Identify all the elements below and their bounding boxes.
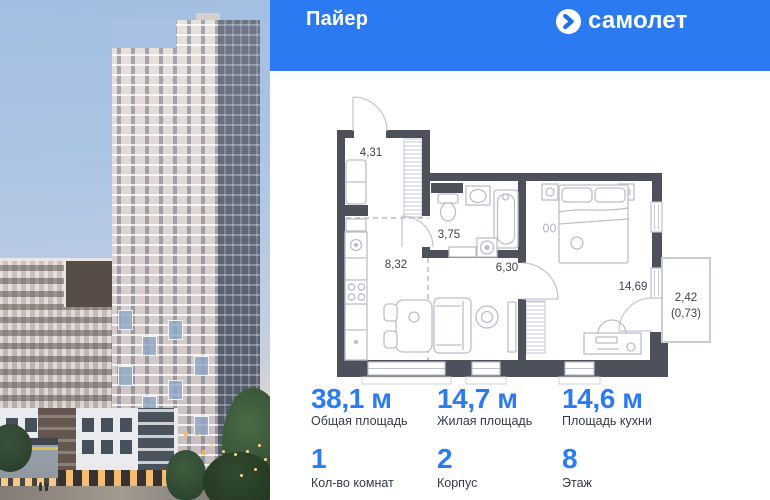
building-number-label: Корпус (437, 477, 477, 490)
living-area-value: 14,7 м (437, 385, 518, 413)
rooms-count-value: 1 (311, 445, 326, 473)
total-area-value: 38,1 м (311, 385, 392, 413)
room-area-bedroom: 14,69 (619, 281, 648, 293)
kitchen-area-label: Площадь кухни (562, 415, 652, 428)
room-area-kitchen: 8,32 (385, 259, 407, 271)
room-area-balcony: 2,42 (675, 292, 697, 304)
bedroom-shaft (526, 301, 545, 353)
floor-number-value: 8 (562, 445, 577, 473)
living-area-label: Жилая площадь (437, 415, 532, 428)
total-area-label: Общая площадь (311, 415, 408, 428)
floor-number-label: Этаж (562, 477, 592, 490)
building-number-value: 2 (437, 445, 452, 473)
hallway-closet (404, 139, 422, 217)
room-area-living: 6,30 (496, 262, 518, 274)
room-area-hallway: 4,31 (360, 147, 382, 159)
room-area-bathroom: 3,75 (438, 229, 460, 241)
room-area-balcony-coef: (0,73) (671, 308, 701, 320)
kitchen-area-value: 14,6 м (562, 385, 643, 413)
rooms-count-label: Кол-во комнат (311, 477, 394, 490)
listing-card: Пайер самолет (0, 0, 770, 500)
